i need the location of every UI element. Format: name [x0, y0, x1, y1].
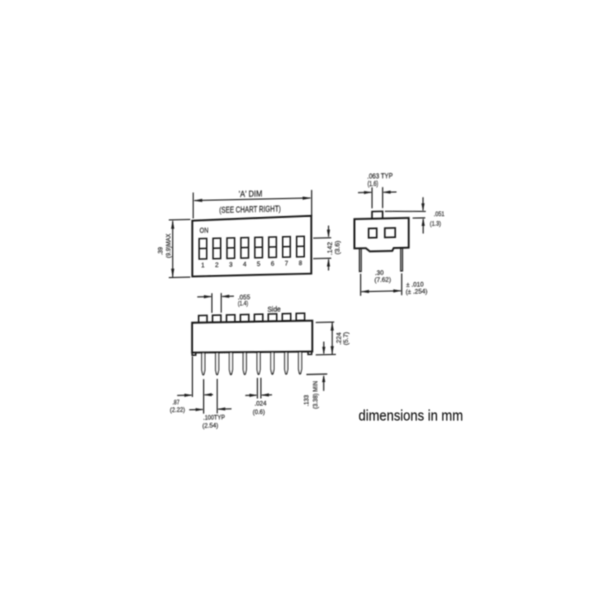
svg-text:6: 6 [271, 260, 275, 267]
svg-text:(3.38) MIN: (3.38) MIN [313, 380, 320, 409]
svg-text:1: 1 [201, 262, 205, 269]
svg-text:(9.9)MAX: (9.9)MAX [165, 233, 172, 258]
svg-text:.133: .133 [303, 394, 310, 406]
svg-text:8: 8 [299, 260, 303, 267]
svg-text:dimensions in mm: dimensions in mm [359, 408, 464, 424]
svg-text:(± .254): (± .254) [406, 288, 428, 295]
svg-text:4: 4 [243, 261, 247, 268]
svg-text:.39: .39 [158, 246, 165, 255]
svg-text:(1.3): (1.3) [430, 220, 441, 227]
svg-text:(3.6): (3.6) [334, 241, 341, 255]
svg-text:.024: .024 [254, 401, 266, 408]
svg-text:(2.22): (2.22) [170, 407, 185, 414]
svg-text:ON: ON [200, 226, 209, 235]
svg-text:(2.54): (2.54) [202, 423, 218, 430]
svg-text:(7.62): (7.62) [374, 277, 391, 284]
svg-text:.142: .142 [327, 242, 334, 256]
svg-text:(1.6): (1.6) [368, 179, 379, 188]
svg-text:(0.6): (0.6) [253, 409, 265, 416]
svg-text:Side: Side [267, 307, 280, 314]
svg-text:5: 5 [257, 261, 261, 268]
svg-text:'A' DIM: 'A' DIM [239, 190, 263, 200]
svg-text:(5.7): (5.7) [343, 332, 350, 345]
svg-text:3: 3 [229, 261, 233, 268]
svg-text:± .010: ± .010 [406, 281, 424, 288]
svg-text:(SEE CHART RIGHT): (SEE CHART RIGHT) [219, 205, 281, 215]
svg-text:(1.4): (1.4) [238, 300, 248, 307]
svg-text:.100TYP: .100TYP [203, 414, 225, 421]
svg-text:.87: .87 [172, 399, 179, 406]
svg-text:.051: .051 [434, 211, 445, 218]
svg-text:2: 2 [215, 262, 219, 269]
svg-text:7: 7 [285, 260, 289, 267]
